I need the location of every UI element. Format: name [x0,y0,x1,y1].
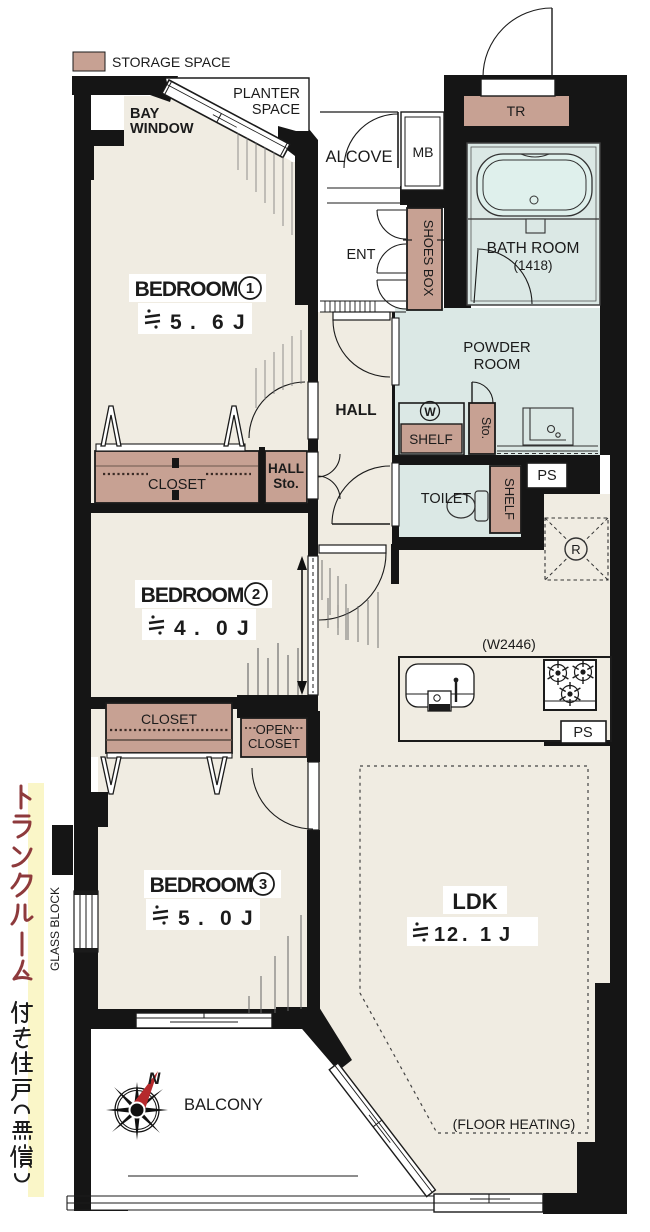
svg-text:.: . [198,907,204,930]
svg-text:SPACE: SPACE [252,102,300,118]
svg-text:0: 0 [220,907,232,930]
svg-text:1: 1 [434,924,445,946]
svg-text:PLANTER: PLANTER [233,86,300,102]
svg-text:6: 6 [212,311,224,334]
svg-text:BEDROOM: BEDROOM [141,584,244,607]
svg-text:ALCOVE: ALCOVE [326,148,393,166]
svg-text:WINDOW: WINDOW [130,121,194,137]
svg-text:MB: MB [413,144,434,160]
svg-text:Sto.: Sto. [273,476,299,491]
svg-text:CLOSET: CLOSET [248,736,300,751]
svg-text:(W2446): (W2446) [482,636,536,652]
svg-text:SHOES BOX: SHOES BOX [421,220,436,297]
svg-text:ENT: ENT [347,247,376,263]
svg-text:3: 3 [259,876,267,893]
svg-text:J: J [499,924,510,946]
svg-text:1: 1 [480,924,491,946]
svg-text:R: R [571,542,580,557]
svg-text:1: 1 [246,280,254,297]
svg-text:5: 5 [178,907,190,930]
svg-text:2: 2 [447,924,458,946]
svg-text:ROOM: ROOM [474,356,521,373]
svg-text:.: . [194,617,200,640]
svg-text:BATH ROOM: BATH ROOM [487,240,580,257]
svg-text:GLASS BLOCK: GLASS BLOCK [48,887,62,971]
svg-text:J: J [233,311,245,334]
svg-text:CLOSET: CLOSET [141,711,197,727]
svg-text:TR: TR [507,103,526,119]
svg-text:OPEN: OPEN [256,722,293,737]
svg-text:4: 4 [174,617,186,640]
svg-text:.: . [462,924,468,946]
svg-text:.: . [190,311,196,334]
svg-text:W: W [424,405,436,419]
svg-text:Sto.: Sto. [479,417,493,439]
svg-text:HALL: HALL [268,461,304,476]
svg-text:STORAGE SPACE: STORAGE SPACE [112,54,231,70]
svg-text:TOILET: TOILET [421,491,472,507]
svg-text:J: J [241,907,253,930]
svg-text:0: 0 [216,617,228,640]
svg-text:(1418): (1418) [513,258,552,273]
svg-text:BALCONY: BALCONY [184,1096,263,1114]
svg-text:(FLOOR HEATING): (FLOOR HEATING) [453,1116,576,1132]
svg-text:5: 5 [170,311,182,334]
svg-text:J: J [237,617,249,640]
svg-text:N: N [148,1069,161,1088]
svg-text:PS: PS [537,468,556,484]
svg-text:POWDER: POWDER [463,339,531,356]
svg-text:2: 2 [252,586,260,603]
svg-text:BEDROOM: BEDROOM [150,874,253,897]
svg-text:BAY: BAY [130,106,160,122]
svg-text:BEDROOM: BEDROOM [135,278,238,301]
svg-text:SHELF: SHELF [502,478,517,520]
svg-text:PS: PS [573,725,592,741]
svg-text:LDK: LDK [452,889,497,914]
svg-text:CLOSET: CLOSET [148,477,206,493]
svg-text:SHELF: SHELF [409,432,453,447]
svg-text:HALL: HALL [335,402,376,419]
